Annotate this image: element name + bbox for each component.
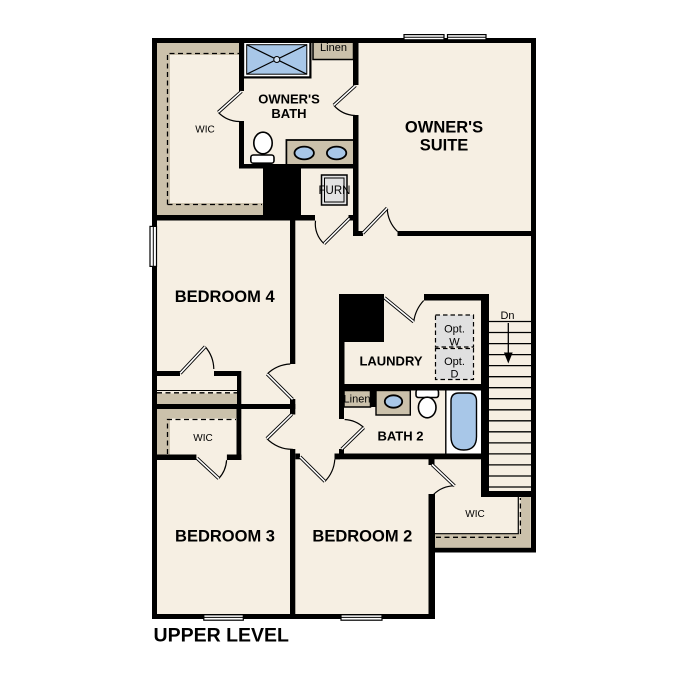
svg-text:FURN: FURN [319,185,351,197]
svg-text:LAUNDRY: LAUNDRY [359,353,422,368]
svg-text:BATH 2: BATH 2 [378,429,424,444]
svg-text:BATH: BATH [271,106,306,121]
svg-text:OWNER'S: OWNER'S [258,91,320,106]
svg-text:UPPER LEVEL: UPPER LEVEL [154,625,290,647]
svg-text:W: W [449,337,460,349]
svg-text:WIC: WIC [195,125,214,136]
svg-text:Opt.: Opt. [444,324,465,336]
svg-text:Opt.: Opt. [444,356,465,368]
svg-text:WIC: WIC [465,509,484,520]
svg-text:BEDROOM 3: BEDROOM 3 [175,528,275,546]
svg-text:WIC: WIC [193,433,212,444]
svg-text:BEDROOM 2: BEDROOM 2 [312,528,412,546]
svg-text:Dn: Dn [500,310,514,322]
svg-text:Linen: Linen [344,394,371,406]
svg-text:D: D [451,369,459,381]
svg-text:Linen: Linen [320,42,347,54]
svg-text:SUITE: SUITE [420,137,469,155]
svg-text:OWNER'S: OWNER'S [405,119,483,137]
svg-text:BEDROOM 4: BEDROOM 4 [175,288,276,306]
